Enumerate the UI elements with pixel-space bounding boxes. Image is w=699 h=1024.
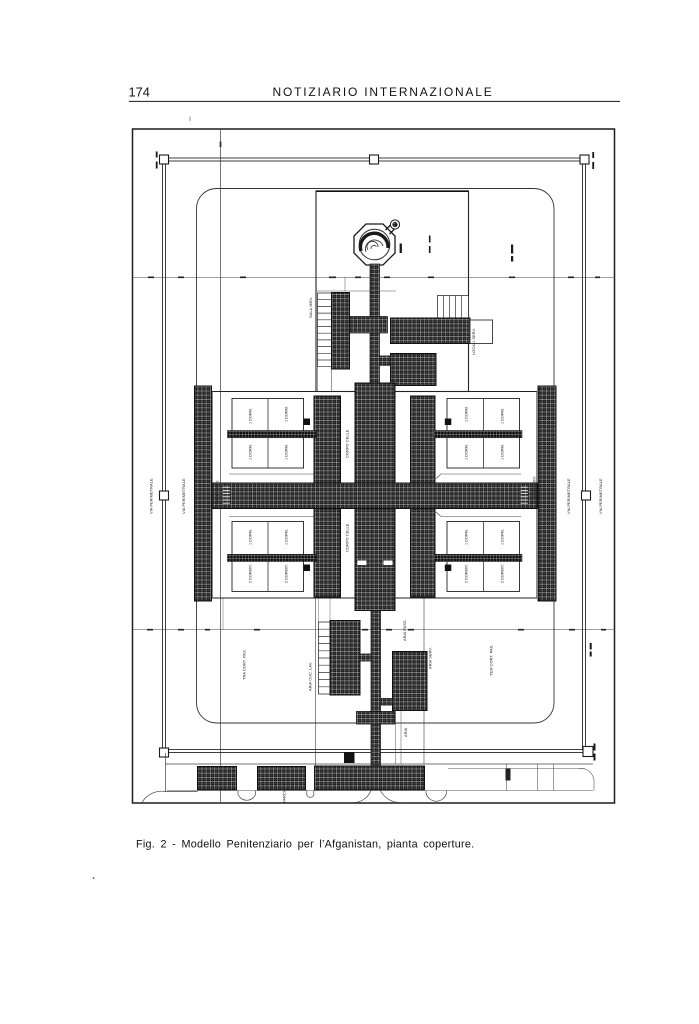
svg-text:1 DORM.: 1 DORM. bbox=[249, 529, 253, 545]
svg-text:1 DORM.: 1 DORM. bbox=[465, 406, 469, 422]
svg-text:1 DORM.: 1 DORM. bbox=[501, 444, 505, 460]
svg-text:ARIA PASS.: ARIA PASS. bbox=[402, 619, 407, 641]
svg-text:CORPO CELLE: CORPO CELLE bbox=[345, 523, 350, 552]
svg-text:VIA PERIMETRALE: VIA PERIMETRALE bbox=[598, 478, 603, 514]
svg-text:1 DORM.: 1 DORM. bbox=[285, 406, 289, 422]
svg-text:1 DORM.: 1 DORM. bbox=[465, 444, 469, 460]
svg-text:PARCH.: PARCH. bbox=[282, 788, 287, 803]
svg-text:Fig. 2 - Modello Penitenziario: Fig. 2 - Modello Penitenziario per l’Afg… bbox=[136, 839, 474, 851]
svg-text:ARIA CUC. LAV.: ARIA CUC. LAV. bbox=[308, 662, 313, 691]
svg-text:CORPO CELLE: CORPO CELLE bbox=[345, 429, 350, 458]
svg-text:1 CORRIDOIO: 1 CORRIDOIO bbox=[532, 477, 537, 503]
svg-text:TEM CORT. PAS.: TEM CORT. PAS. bbox=[489, 645, 494, 676]
svg-text:2 DORMIT.: 2 DORMIT. bbox=[249, 564, 253, 583]
svg-text:1 DORM.: 1 DORM. bbox=[285, 444, 289, 460]
svg-text:1 DORM.: 1 DORM. bbox=[249, 408, 253, 424]
svg-text:TRA CORT. PAS.: TRA CORT. PAS. bbox=[242, 649, 247, 680]
svg-text:2 DORMIT.: 2 DORMIT. bbox=[285, 564, 289, 583]
svg-text:1 DORM.: 1 DORM. bbox=[249, 444, 253, 460]
svg-text:2 DORMIT.: 2 DORMIT. bbox=[465, 564, 469, 583]
svg-text:SALA MEN.: SALA MEN. bbox=[308, 297, 313, 318]
svg-text:1 CORRIDOIO: 1 CORRIDOIO bbox=[215, 481, 220, 507]
svg-text:VIA PERIMETRALE: VIA PERIMETRALE bbox=[149, 478, 154, 514]
svg-text:VIA PERIMETRALE: VIA PERIMETRALE bbox=[566, 478, 571, 514]
svg-text:LOCALI SERV.: LOCALI SERV. bbox=[471, 328, 476, 355]
svg-text:174: 174 bbox=[129, 85, 150, 100]
svg-text:1 DORM.: 1 DORM. bbox=[465, 529, 469, 545]
svg-text:1 DORM.: 1 DORM. bbox=[501, 408, 505, 424]
svg-text:1 DORM.: 1 DORM. bbox=[285, 529, 289, 545]
svg-text:1 DORM.: 1 DORM. bbox=[501, 529, 505, 545]
svg-text:ARIA: ARIA bbox=[403, 727, 408, 737]
svg-text:VIA PERIMETRALE: VIA PERIMETRALE bbox=[181, 478, 186, 514]
svg-text:2 DORMIT.: 2 DORMIT. bbox=[501, 564, 505, 583]
svg-text:NOTIZIARIO INTERNAZIONALE: NOTIZIARIO INTERNAZIONALE bbox=[272, 85, 493, 99]
svg-text:ARIA SERV.: ARIA SERV. bbox=[428, 647, 433, 669]
